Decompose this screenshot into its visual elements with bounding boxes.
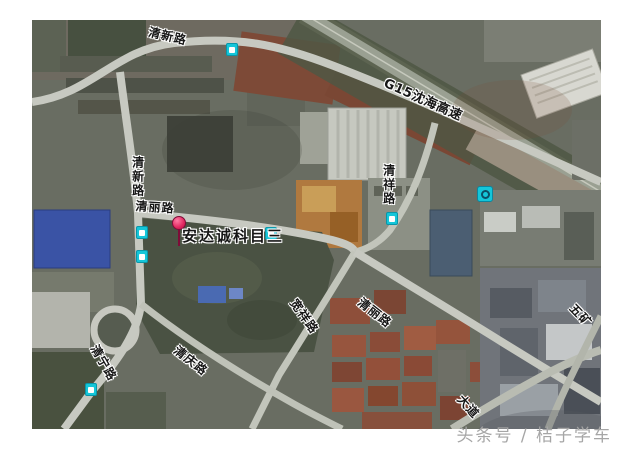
watermark: 头条号 / 桔子学车 <box>456 421 612 446</box>
satellite-imagery <box>32 20 601 429</box>
bus-glyph <box>139 254 145 260</box>
bus-glyph <box>88 387 94 393</box>
bus-stop-icon[interactable] <box>386 212 398 225</box>
map-pin-stem <box>178 229 180 246</box>
bus-stop-icon[interactable] <box>136 250 148 263</box>
metro-station-icon[interactable] <box>477 186 493 202</box>
road-label-qingli-west: 清丽路 <box>135 200 175 215</box>
bus-glyph <box>229 47 235 53</box>
metro-glyph <box>481 190 490 199</box>
bus-stop-icon[interactable] <box>136 226 148 239</box>
bus-stop-icon[interactable] <box>85 383 97 396</box>
bus-stop-icon[interactable] <box>226 43 238 56</box>
page: 清新路 G15沈海高速 清新路 清丽路 清祥路 清丽路 宽祥路 清庆路 清宁路 … <box>0 0 622 449</box>
bus-glyph <box>389 216 395 222</box>
road-label-qingxiang: 清祥路 <box>382 164 395 206</box>
poi-label-anda-cheng-subject3: 安达诚科目三 <box>182 229 284 245</box>
satellite-map[interactable]: 清新路 G15沈海高速 清新路 清丽路 清祥路 清丽路 宽祥路 清庆路 清宁路 … <box>32 20 601 429</box>
bus-glyph <box>139 230 145 236</box>
road-label-qingxin-left: 清新路 <box>131 156 144 198</box>
